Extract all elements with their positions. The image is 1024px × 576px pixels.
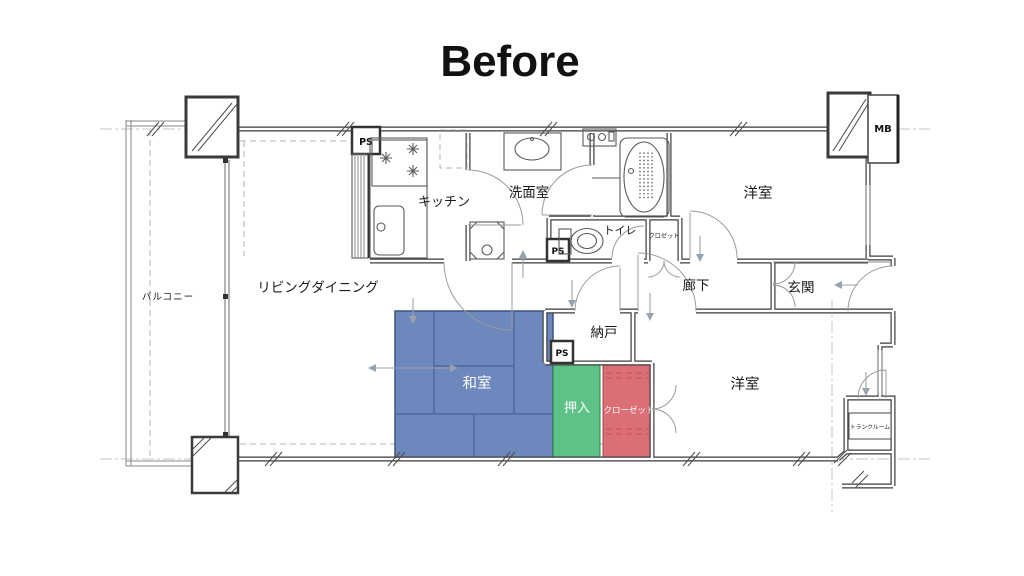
room-label-washroom: 洗面室 xyxy=(509,184,550,201)
room-label-hall-closet: クロゼット xyxy=(649,232,680,240)
room-label-storage: 納戸 xyxy=(591,325,618,341)
room-label-closet: クローゼット xyxy=(603,405,654,416)
room-label-japanese-room: 和室 xyxy=(463,375,492,392)
room-label-corridor: 廊下 xyxy=(683,277,710,294)
bathroom-fixtures xyxy=(592,138,669,217)
floor-plan: MB PS PS PS xyxy=(0,0,1024,576)
room-label-bedroom-north: 洋室 xyxy=(744,185,773,202)
ps-label-toilet: PS xyxy=(551,247,564,257)
faucet xyxy=(377,223,385,231)
ps-label-kitchen: PS xyxy=(359,137,373,148)
column-bottom-left xyxy=(192,437,238,493)
refrigerator-space xyxy=(440,130,467,168)
room-label-living-dining: リビングダイニング xyxy=(257,280,379,296)
room-label-kitchen: キッチン xyxy=(418,195,470,210)
meter-box: MB xyxy=(868,95,898,163)
room-label-trunk: トランクルーム xyxy=(850,424,890,431)
room-label-oshiire: 押入 xyxy=(564,401,590,416)
washing-machine-pan xyxy=(470,222,504,259)
mb-label: MB xyxy=(874,124,892,135)
page-title: Before xyxy=(440,37,579,86)
ps-label-storage: PS xyxy=(555,349,568,359)
room-label-balcony: バルコニー xyxy=(142,292,194,303)
bathtub xyxy=(620,138,669,217)
room-label-bedroom-south: 洋室 xyxy=(731,376,760,393)
room-label-entrance: 玄関 xyxy=(788,279,815,296)
vanity-sink xyxy=(515,138,549,160)
room-label-toilet: トイレ xyxy=(604,224,637,237)
stove-burners xyxy=(380,143,419,177)
